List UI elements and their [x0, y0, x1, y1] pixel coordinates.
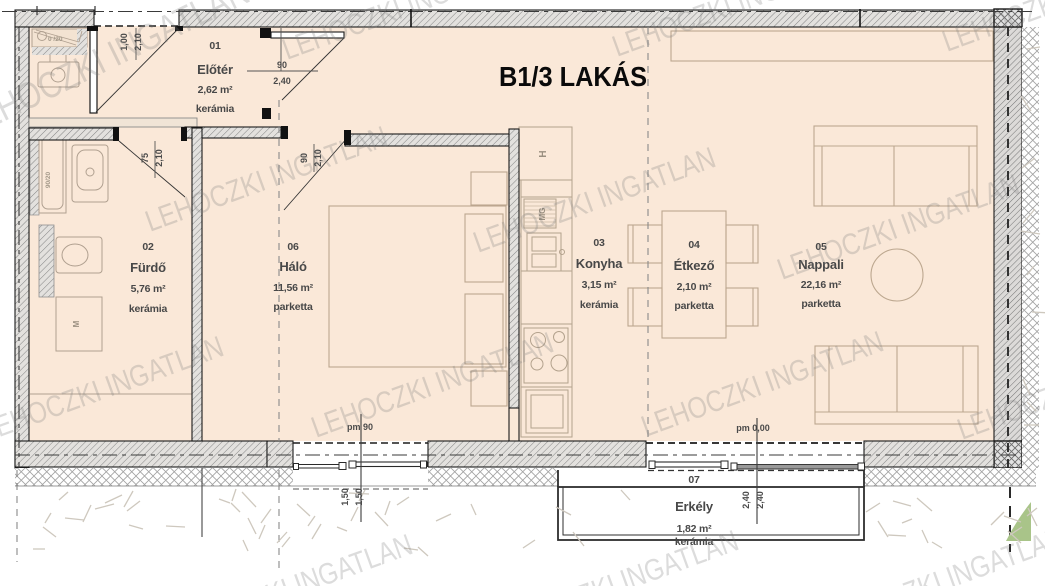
svg-text:2,10: 2,10 — [154, 149, 164, 167]
svg-text:0 /20: 0 /20 — [48, 36, 63, 43]
svg-text:pm 0,00: pm 0,00 — [736, 423, 770, 433]
svg-text:B1/3 LAKÁS: B1/3 LAKÁS — [499, 61, 647, 92]
svg-text:parketta: parketta — [273, 301, 313, 313]
svg-text:Fürdő: Fürdő — [130, 260, 166, 275]
svg-text:01: 01 — [209, 40, 221, 52]
svg-text:90/20: 90/20 — [45, 171, 52, 188]
svg-text:kerámia: kerámia — [129, 303, 168, 315]
svg-text:kerámia: kerámia — [580, 299, 619, 311]
svg-text:Konyha: Konyha — [576, 256, 623, 271]
svg-text:06: 06 — [287, 241, 299, 253]
svg-text:parketta: parketta — [801, 298, 841, 310]
svg-text:2,10 m²: 2,10 m² — [677, 281, 712, 293]
svg-text:04: 04 — [688, 239, 700, 251]
svg-text:75: 75 — [140, 153, 150, 163]
svg-text:22,16 m²: 22,16 m² — [801, 279, 842, 291]
svg-text:07: 07 — [688, 474, 700, 486]
svg-text:2,62 m²: 2,62 m² — [198, 84, 233, 96]
svg-text:Erkély: Erkély — [675, 499, 714, 514]
svg-text:2,40: 2,40 — [755, 491, 765, 509]
svg-text:2,40: 2,40 — [741, 491, 751, 509]
svg-text:H: H — [538, 150, 549, 157]
svg-text:Háló: Háló — [279, 259, 307, 274]
svg-text:11,56 m²: 11,56 m² — [273, 282, 314, 294]
svg-text:1,50: 1,50 — [340, 488, 350, 506]
svg-text:M: M — [72, 320, 81, 327]
svg-text:parketta: parketta — [674, 300, 714, 312]
svg-text:Előtér: Előtér — [197, 62, 233, 77]
svg-text:90: 90 — [277, 60, 287, 70]
svg-text:kerámia: kerámia — [196, 103, 235, 115]
svg-text:2,40: 2,40 — [273, 76, 291, 86]
svg-text:3,15 m²: 3,15 m² — [582, 279, 617, 291]
svg-text:02: 02 — [142, 241, 154, 253]
svg-text:5,76 m²: 5,76 m² — [131, 283, 166, 295]
svg-text:Étkező: Étkező — [674, 258, 715, 273]
svg-text:1,50: 1,50 — [354, 488, 364, 506]
svg-text:03: 03 — [593, 237, 605, 249]
